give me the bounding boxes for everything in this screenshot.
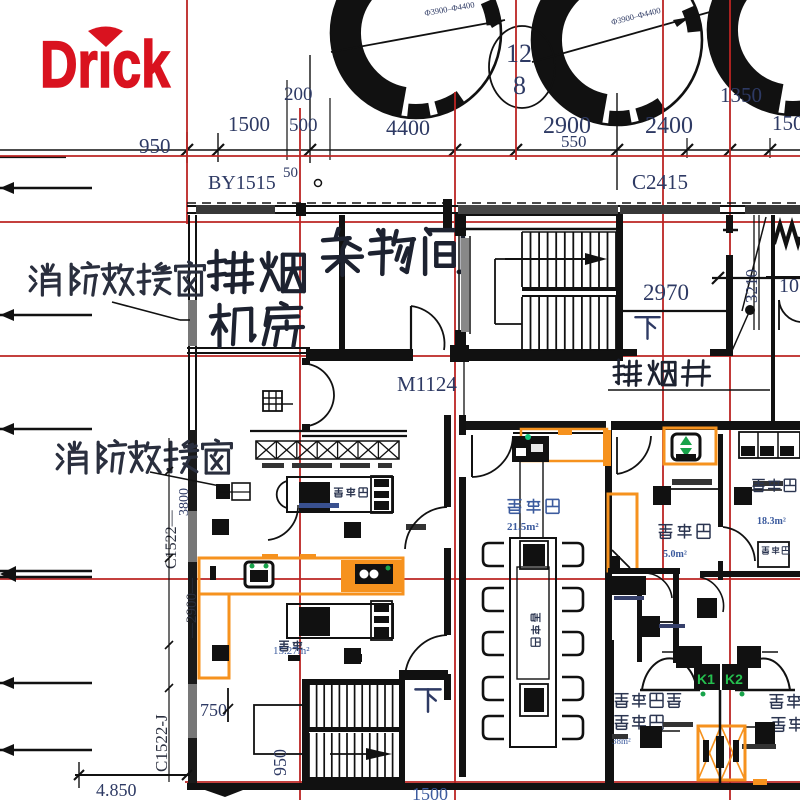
svg-text:2970: 2970 (643, 280, 689, 305)
svg-text:200: 200 (284, 84, 313, 105)
svg-text:12: 12 (506, 39, 532, 68)
svg-text:1500: 1500 (412, 784, 448, 800)
svg-text:1500: 1500 (228, 112, 270, 136)
svg-text:750: 750 (200, 700, 227, 720)
svg-text:4.850: 4.850 (96, 780, 137, 800)
svg-text:10: 10 (779, 275, 799, 297)
svg-text:2900: 2900 (543, 113, 591, 139)
svg-text:8: 8 (513, 71, 526, 100)
svg-text:150: 150 (772, 111, 800, 135)
svg-text:K2: K2 (725, 671, 743, 687)
svg-text:50: 50 (283, 165, 298, 181)
svg-text:21.5m²: 21.5m² (507, 521, 539, 533)
svg-text:BY1515: BY1515 (208, 172, 276, 194)
svg-text:3210: 3210 (742, 269, 761, 303)
svg-text:4400: 4400 (386, 115, 430, 140)
svg-text:2400: 2400 (645, 113, 693, 139)
svg-text:18.3m²: 18.3m² (757, 516, 786, 527)
svg-text:1350: 1350 (720, 83, 762, 107)
svg-text:C2415: C2415 (632, 170, 688, 194)
svg-text:M1124: M1124 (397, 372, 457, 396)
svg-text:950: 950 (139, 134, 171, 158)
svg-text:—2900—: —2900— (184, 577, 200, 639)
svg-text:C1522-J: C1522-J (152, 714, 171, 772)
svg-text:950: 950 (270, 749, 290, 776)
svg-text:5.0m²: 5.0m² (663, 549, 687, 560)
svg-text:K1: K1 (697, 671, 715, 687)
svg-text:C1522—: C1522— (163, 509, 180, 569)
svg-text:500: 500 (289, 115, 318, 136)
